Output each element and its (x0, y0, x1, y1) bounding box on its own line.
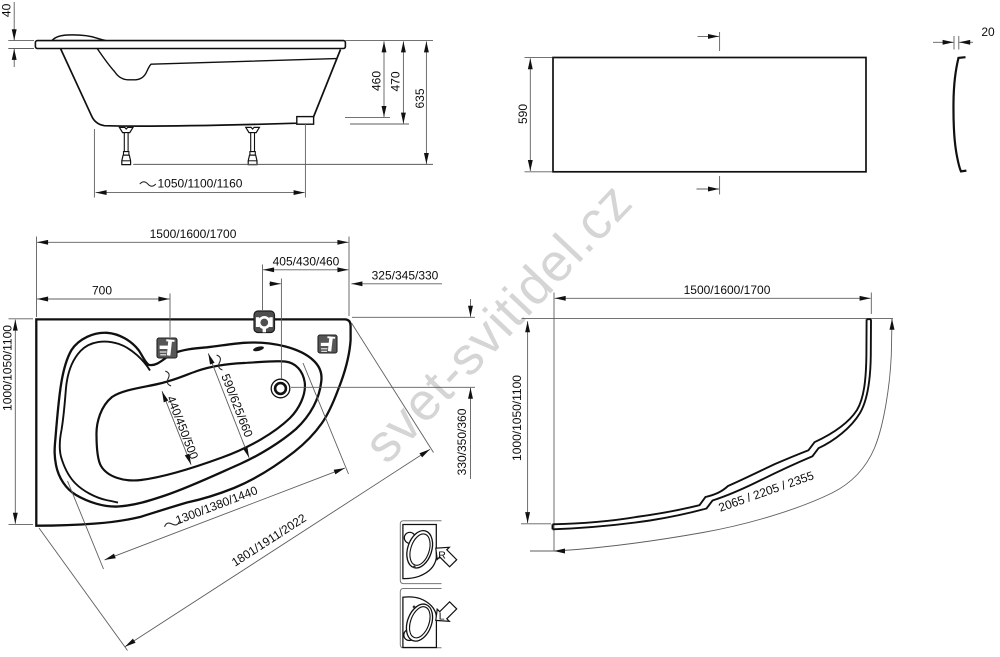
svg-text:700: 700 (92, 284, 112, 298)
svg-text:1500/1600/1700: 1500/1600/1700 (684, 283, 771, 297)
svg-text:20: 20 (981, 25, 995, 39)
svg-text:460: 460 (370, 71, 384, 91)
svg-text:L: L (439, 610, 445, 622)
svg-text:40: 40 (0, 3, 13, 17)
svg-text:1000/1050/1100: 1000/1050/1100 (510, 375, 524, 461)
svg-text:590: 590 (516, 104, 530, 124)
svg-text:R: R (438, 550, 446, 562)
svg-text:470: 470 (389, 71, 403, 91)
svg-text:1500/1600/1700: 1500/1600/1700 (150, 227, 237, 241)
svg-text:1000/1050/1100: 1000/1050/1100 (1, 325, 15, 411)
svg-text:325/345/330: 325/345/330 (372, 268, 439, 282)
svg-text:1050/1100/1160: 1050/1100/1160 (158, 177, 243, 191)
svg-text:330/350/360: 330/350/360 (455, 408, 469, 475)
svg-text:635: 635 (413, 88, 427, 108)
svg-text:405/430/460: 405/430/460 (273, 254, 340, 268)
